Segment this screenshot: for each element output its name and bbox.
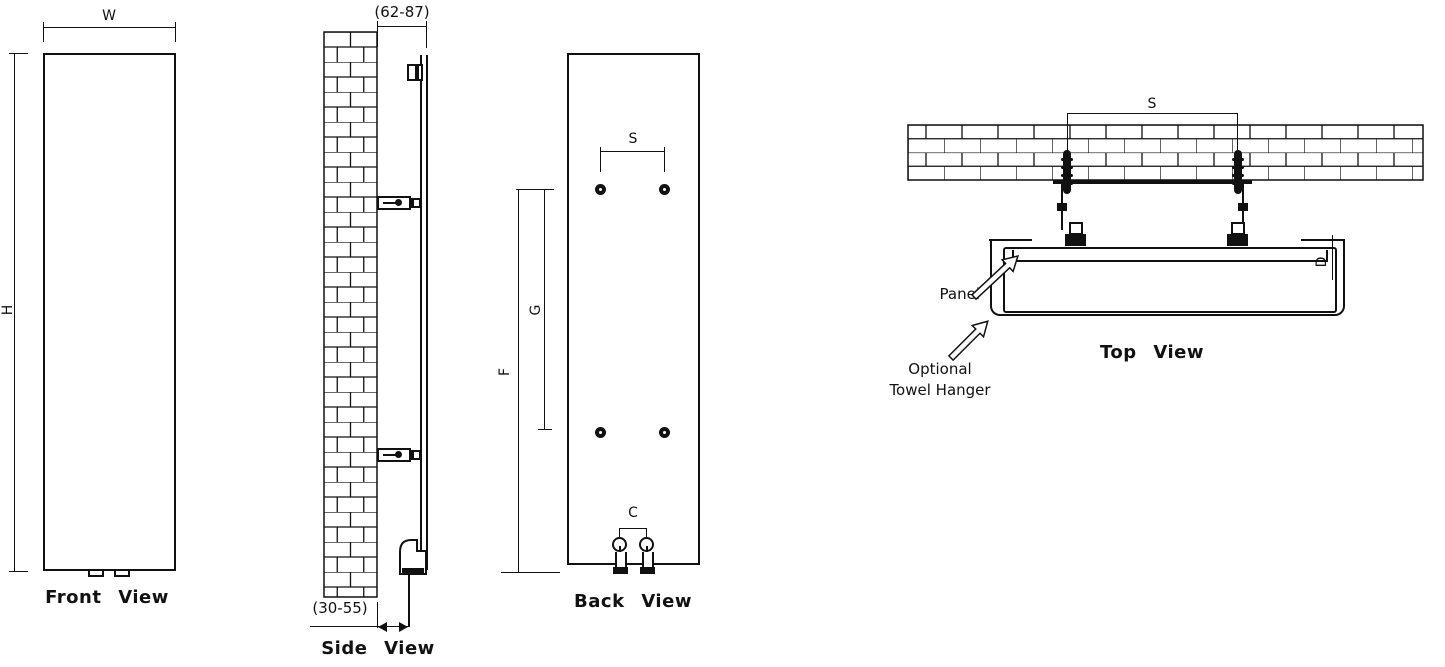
- back-g-dim-line: [544, 189, 545, 429]
- back-pipe-connection-right-stem: [646, 546, 648, 552]
- back-pipe-stub-right: [642, 552, 654, 568]
- side-wall-gap-dim-label: (62-87): [371, 4, 433, 20]
- top-depth-dim-label: D: [1314, 252, 1330, 272]
- top-panel-face-line: [1012, 260, 1328, 262]
- front-height-tick-top: [9, 53, 28, 54]
- front-pipe-stub-left: [88, 571, 104, 577]
- back-fg-tick-top: [516, 189, 554, 190]
- back-panel-body: [567, 53, 700, 565]
- dim-arrow-right-icon: [399, 622, 408, 632]
- back-pipe-stub-left: [615, 552, 627, 568]
- top-bracket-base-right: [1227, 234, 1248, 246]
- top-towel-hanger-tab-left: [989, 239, 1032, 241]
- back-f-dim-line: [518, 189, 519, 573]
- front-width-ext-left: [43, 22, 44, 42]
- top-view-title: Top View: [1082, 342, 1222, 363]
- top-bracket-base-left: [1065, 234, 1086, 246]
- mounting-hole-bottom-left: [595, 427, 606, 438]
- side-panel-profile: [420, 55, 428, 570]
- back-pipe-span-dim-line: [620, 528, 647, 529]
- top-bracket-nut-left: [1057, 203, 1067, 211]
- mounting-hole-bottom-right: [659, 427, 670, 438]
- top-panel-face-end-left: [1012, 250, 1014, 261]
- side-bracket-lower-screw-head: [395, 451, 402, 458]
- top-bracket-rail: [1053, 180, 1252, 184]
- back-g-tick-bottom: [538, 429, 552, 430]
- side-bracket-upper-clamp: [411, 198, 422, 208]
- back-bracket-span-ext-right: [664, 147, 665, 172]
- mounting-hole-top-right: [659, 184, 670, 195]
- front-width-dim-label: W: [89, 8, 129, 24]
- side-wall-gap-ext-left: [377, 21, 378, 47]
- back-g-dim-label: G: [528, 300, 544, 320]
- back-f-dim-label: F: [497, 362, 513, 382]
- side-top-hanger-bracket-pin: [415, 66, 419, 79]
- front-view-title: Front View: [37, 587, 177, 608]
- side-wall-gap-dim-line: [377, 26, 427, 27]
- side-pipe-gap-dim-label: (30-55): [306, 600, 374, 616]
- front-width-ext-right: [175, 22, 176, 42]
- side-bracket-lower-clamp: [411, 450, 422, 460]
- top-bracket-span-ext-left: [1067, 113, 1068, 151]
- side-view-title: Side View: [308, 638, 448, 659]
- back-pipe-connection-left-stem: [619, 546, 621, 552]
- dim-arrow-left-icon: [378, 622, 387, 632]
- overlay-shapes-layer: [0, 0, 1445, 667]
- top-depth-dim-line: [1332, 235, 1333, 280]
- back-pipe-span-dim-label: C: [613, 505, 653, 521]
- back-view-title: Back View: [563, 591, 703, 612]
- back-bracket-span-dim-label: S: [613, 131, 653, 147]
- brick-walls-layer: [0, 0, 1445, 667]
- top-bracket-span-dim-label: S: [1132, 96, 1172, 112]
- towel-hanger-arrow-icon: [945, 316, 993, 364]
- mounting-hole-top-left: [595, 184, 606, 195]
- side-bracket-upper-screw-head: [395, 199, 402, 206]
- front-panel-body: [43, 53, 176, 571]
- top-bracket-span-ext-right: [1237, 113, 1238, 151]
- top-panel-body: [1003, 247, 1337, 313]
- front-height-tick-bottom: [9, 571, 28, 572]
- top-bracket-span-dim-line: [1067, 113, 1238, 114]
- towel-hanger-annotation-line1: Optional: [903, 361, 977, 377]
- panel-annotation-label: Panel: [930, 286, 980, 302]
- back-pipe-cap-left: [613, 567, 628, 574]
- side-view-wall-section: [324, 32, 377, 597]
- back-bracket-span-ext-left: [600, 147, 601, 172]
- towel-hanger-annotation-line2: Towel Hanger: [886, 382, 994, 398]
- back-pipe-cap-right: [640, 567, 655, 574]
- top-view-wall-section: [908, 125, 1423, 180]
- technical-drawing-canvas: W H Front View (62-87) (30-55) Side View…: [0, 0, 1445, 667]
- top-bracket-nut-right: [1238, 203, 1248, 211]
- front-width-dim-line: [43, 27, 176, 28]
- back-f-tick-bottom: [501, 572, 560, 573]
- front-pipe-stub-right: [114, 571, 130, 577]
- front-height-dim-label: H: [0, 300, 16, 320]
- side-pipe-gap-dim-line: [310, 626, 410, 627]
- side-wall-gap-ext-right: [426, 21, 427, 48]
- back-bracket-span-dim-line: [601, 151, 665, 152]
- top-towel-hanger-tab-right: [1301, 239, 1345, 241]
